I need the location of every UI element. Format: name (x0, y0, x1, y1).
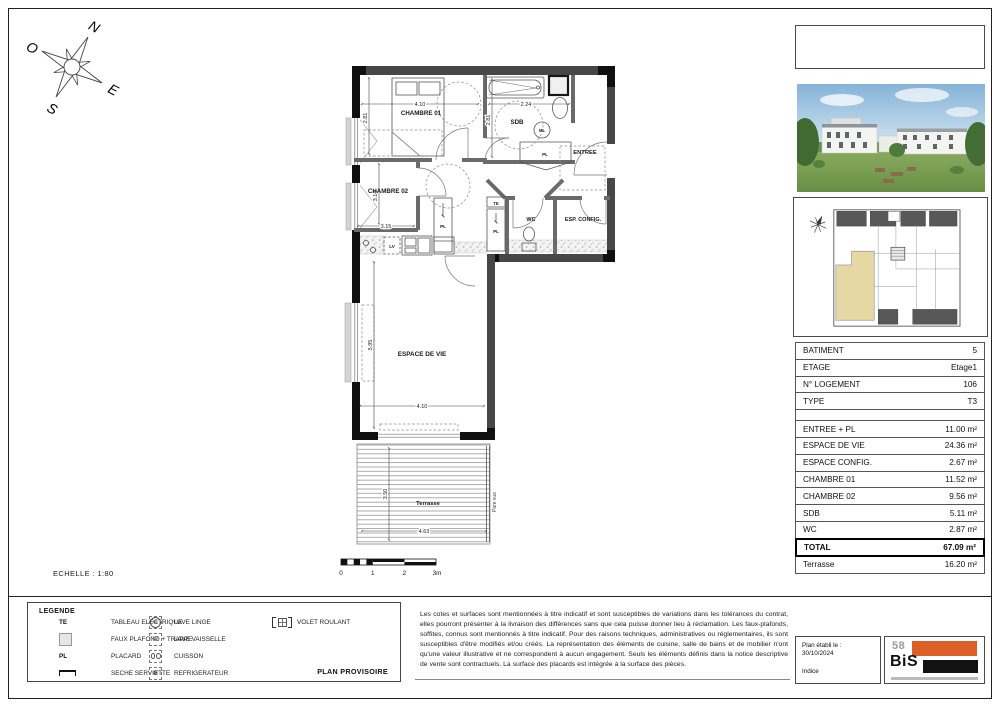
date-stamp-box: Plan établi le : 30/10/2024 Indice (795, 636, 881, 684)
faux-plafond-icon (59, 633, 72, 646)
logo-black-bar (923, 660, 978, 673)
svg-text:2.24: 2.24 (521, 102, 532, 108)
table-row: ESPACE CONFIG.2.67 m² (795, 454, 985, 472)
legend-title: LEGENDE (39, 608, 75, 615)
indice-label: Indice (802, 668, 819, 675)
compass-s: S (44, 99, 60, 118)
label-lv: LV (389, 244, 395, 249)
cuisson-icon (149, 650, 162, 663)
logo-tagline-bar (891, 677, 978, 680)
legend-item-lave-vaisselle: LV LAVE VAISSELLE (149, 632, 226, 646)
svg-text:4.10: 4.10 (415, 102, 426, 108)
table-row: SDB5.11 m² (795, 504, 985, 522)
volet-roulant-icon (272, 617, 292, 628)
scale-label: ECHELLE : 1:80 (53, 569, 114, 578)
svg-text:3.50: 3.50 (383, 489, 389, 500)
table-row: ETAGEEtage1 (795, 359, 985, 377)
pl-symbol: PL (59, 653, 67, 660)
label-sdb: SDB (510, 119, 524, 126)
label-wc: WC (526, 217, 535, 223)
site-building (834, 210, 960, 326)
compass-rose: N O E S (24, 17, 122, 118)
compass-n: N (86, 17, 103, 36)
label-chambre01: CHAMBRE 01 (401, 110, 442, 117)
label-pl-hall-west: PL (440, 224, 446, 229)
legend-box: LEGENDE TE TABLEAU ELECTRIQUE FAUX PLAFO… (27, 602, 401, 682)
floor-plan-drawing: N O E S (0, 0, 790, 600)
label-esp-config: ESP. CONFIG. (565, 217, 602, 223)
refrigerateur-icon: ❄ (149, 667, 162, 680)
logo-number: 58 (892, 640, 905, 652)
svg-text:2.81: 2.81 (486, 115, 492, 126)
table-row: ESPACE DE VIE24.36 m² (795, 437, 985, 455)
lave-vaisselle-icon: LV (149, 633, 162, 646)
table-row: BATIMENT5 (795, 342, 985, 360)
svg-text:0: 0 (339, 570, 343, 577)
svg-text:4.63: 4.63 (419, 529, 430, 535)
unit-info-table: BATIMENT5 ETAGEEtage1 N° LOGEMENT106 TYP… (795, 342, 985, 574)
table-row: N° LOGEMENT106 (795, 376, 985, 394)
label-terrasse: Terrasse (416, 501, 441, 507)
lave-linge-icon: ML (149, 616, 162, 629)
table-row: CHAMBRE 0111.52 m² (795, 471, 985, 489)
legend-item-volet-roulant: VOLET ROULANT (272, 615, 350, 629)
date-label: Plan établi le : (802, 642, 842, 649)
compass-o: O (24, 38, 41, 57)
legend-item-lave-linge: ML LAVE LINGE (149, 615, 211, 629)
compass-e: E (105, 80, 121, 99)
legend-item-refrigerateur: ❄ REFRIGERATEUR (149, 666, 228, 680)
legend-item-placard: PL PLACARD (59, 649, 141, 663)
windows (345, 118, 460, 439)
disclaimer-notes: Les cotes et surfaces sont mentionnées à… (420, 610, 788, 670)
plan-status: PLAN PROVISOIRE (317, 667, 388, 676)
svg-text:1: 1 (371, 570, 375, 577)
label-chambre02: CHAMBRE 02 (368, 188, 409, 195)
architect-logo-box: 58 BiS (884, 636, 985, 684)
label-pl-sdb: PL (542, 152, 548, 157)
logo-name: BiS (890, 653, 918, 671)
date-value: 30/10/2024 (802, 650, 834, 657)
notes-divider (415, 679, 790, 680)
table-row: Terrasse16.20 m² (795, 556, 985, 574)
table-row-total: TOTAL67.09 m² (795, 538, 985, 557)
logo-orange-bar (912, 641, 977, 656)
table-row: TYPET3 (795, 392, 985, 410)
label-espace-de-vie: ESPACE DE VIE (398, 351, 447, 358)
scale-bar: 0 1 2 3m (339, 559, 441, 577)
pare-vue-label: Pare vue (492, 492, 498, 512)
legend-item-cuisson: CUISSON (149, 649, 203, 663)
svg-text:2: 2 (403, 570, 407, 577)
table-row: CHAMBRE 029.56 m² (795, 487, 985, 505)
svg-text:2.81: 2.81 (363, 113, 369, 124)
site-key-plan (793, 197, 988, 337)
project-photo (797, 84, 985, 192)
table-row: WC2.87 m² (795, 521, 985, 539)
table-row: ENTREE + PL11.00 m² (795, 420, 985, 438)
floor-hatch-zones (360, 236, 611, 254)
label-ml: ML (539, 128, 545, 133)
svg-text:4.10: 4.10 (417, 404, 428, 410)
site-mini-compass (806, 212, 830, 236)
site-stair-core (891, 247, 905, 260)
label-te: TE (493, 201, 499, 206)
svg-text:3.15: 3.15 (381, 224, 392, 230)
floor-plan-sheet: { "page": { "scale_label": "ECHELLE : 1:… (0, 0, 1000, 707)
svg-text:3m: 3m (433, 570, 442, 577)
title-block-empty (795, 25, 985, 69)
seche-serviette-icon (59, 670, 76, 676)
label-entree: ENTREE (573, 150, 597, 156)
te-symbol: TE (59, 619, 67, 626)
svg-text:5.95: 5.95 (368, 340, 374, 351)
label-pl-hall-east: PL (493, 229, 499, 234)
